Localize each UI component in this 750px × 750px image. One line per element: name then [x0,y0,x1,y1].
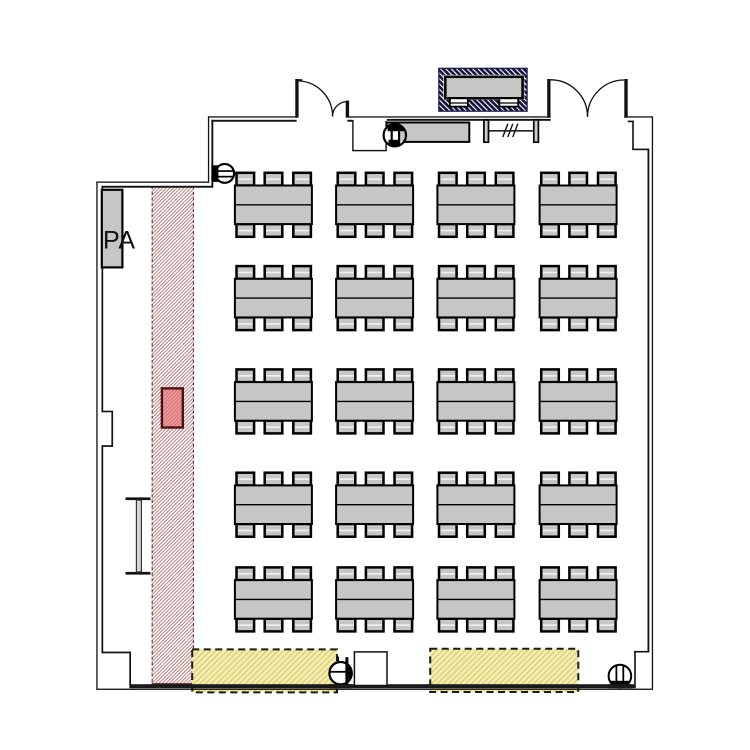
svg-text:PA: PA [103,227,136,255]
